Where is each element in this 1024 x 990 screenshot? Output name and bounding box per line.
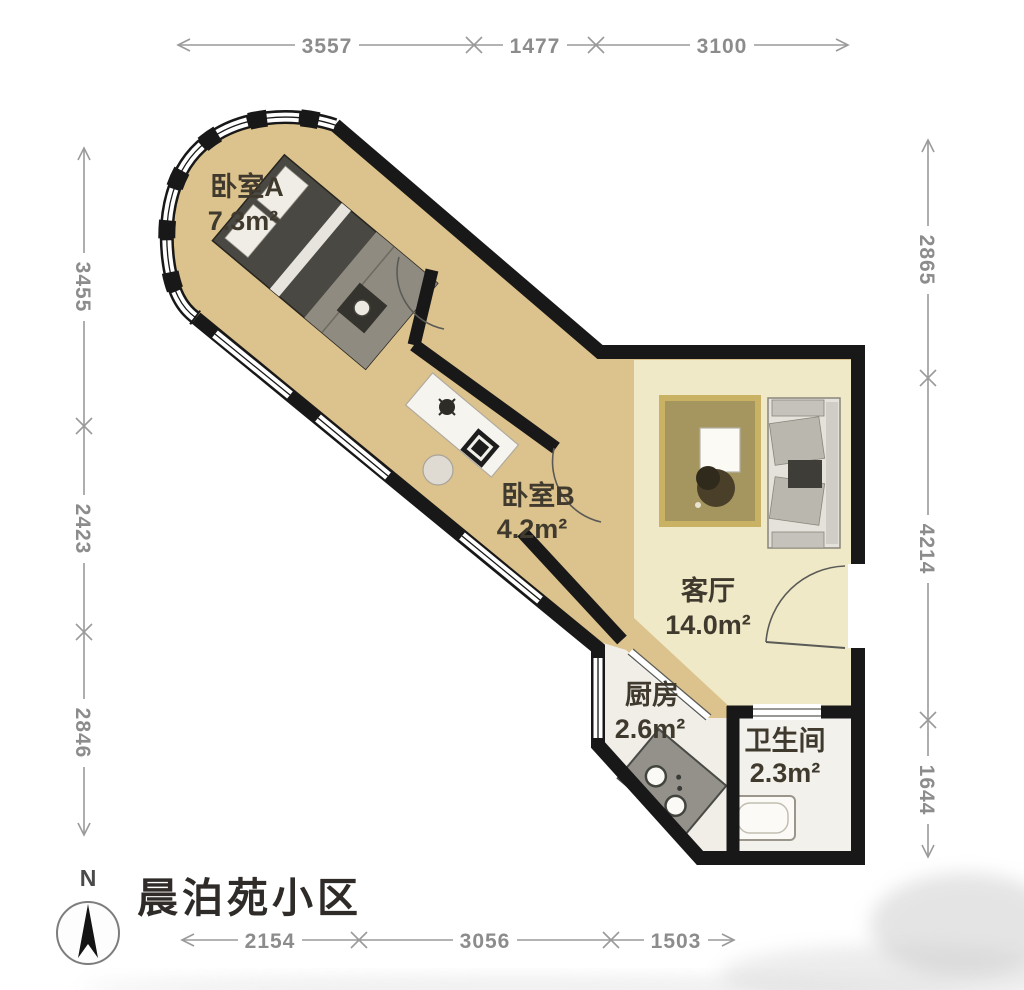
bathroom-sliding-door (753, 704, 821, 720)
dim-top-2: 1477 (510, 35, 561, 58)
bedroomA-area: 7.3m² (208, 206, 279, 236)
bedroomB-area: 4.2m² (497, 514, 568, 544)
rug (662, 398, 758, 524)
dim-bottom-3: 1503 (651, 930, 702, 953)
bedroomA-label: 卧室A (210, 171, 284, 202)
floorplan-canvas: 卧室A 7.3m² 卧室B 4.2m² 客厅 14.0m² 厨房 2.6m² 卫… (0, 0, 1024, 990)
dim-top-3: 3100 (697, 35, 748, 58)
dim-bottom-2: 3056 (460, 930, 511, 953)
dim-left-2: 2423 (71, 504, 94, 555)
kitchen-area: 2.6m² (615, 714, 686, 744)
dim-top-1: 3557 (302, 35, 353, 58)
living-label: 客厅 (681, 575, 735, 606)
living-area: 14.0m² (665, 610, 751, 640)
desk-plant (439, 399, 455, 415)
dim-right-3: 1644 (915, 765, 938, 816)
bath-label: 卫生间 (745, 726, 826, 756)
floorplan-page: 卧室A 7.3m² 卧室B 4.2m² 客厅 14.0m² 厨房 2.6m² 卫… (0, 0, 1024, 990)
community-title: 晨泊苑小区 (137, 875, 362, 921)
north-label: N (80, 865, 97, 891)
kitchen-label: 厨房 (625, 680, 679, 710)
dim-left-1: 3455 (71, 262, 94, 313)
north-compass: N (57, 865, 119, 964)
bath-area: 2.3m² (750, 758, 821, 788)
dim-right-2: 4214 (915, 524, 938, 575)
bedroomB-label: 卧室B (501, 480, 575, 511)
bathtub (731, 796, 795, 840)
stool (423, 455, 453, 485)
dim-right-1: 2865 (915, 235, 938, 286)
dim-bottom-1: 2154 (245, 930, 296, 953)
sofa (768, 398, 840, 548)
dim-left-3: 2846 (71, 708, 94, 759)
